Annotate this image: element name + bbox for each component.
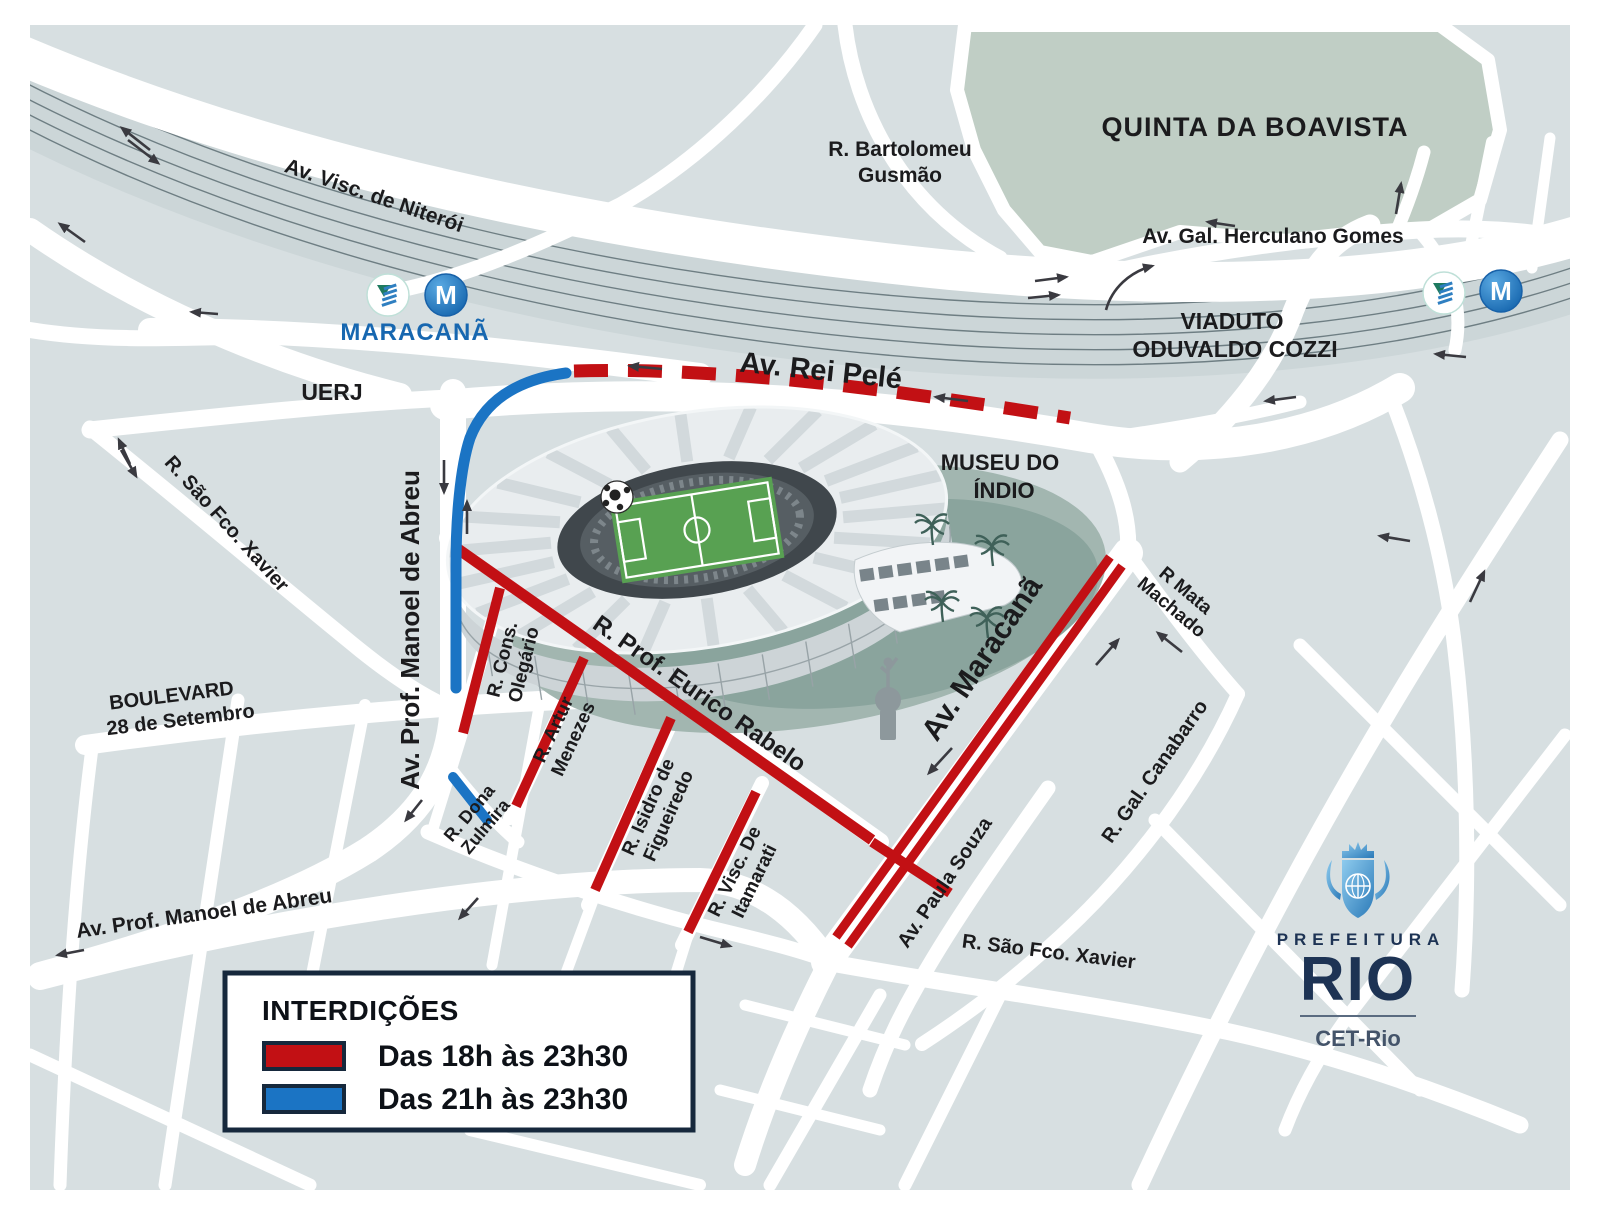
road-closure-map: M M Av. Visc. de Niterói R. Bartolomeu G… (0, 0, 1600, 1224)
metro-icon: M (425, 274, 467, 316)
area-label-park: QUINTA DA BOAVISTA (1102, 112, 1409, 142)
map-canvas: M M Av. Visc. de Niterói R. Bartolomeu G… (0, 0, 1600, 1224)
metro-letter: M (435, 280, 457, 310)
supervia-icon (367, 274, 409, 316)
logo-rio: RIO (1300, 945, 1416, 1014)
area-label-museum: MUSEU DO (941, 450, 1060, 475)
area-label-museum: ÍNDIO (973, 478, 1034, 503)
area-label-viaduct: ODUVALDO COZZI (1132, 336, 1337, 362)
legend-swatch-21h (264, 1086, 344, 1112)
legend-swatch-18h (264, 1043, 344, 1069)
area-label-viaduct: VIADUTO (1180, 308, 1283, 334)
legend-title: INTERDIÇÕES (262, 995, 459, 1026)
logo-cet-rio: CET-Rio (1315, 1026, 1401, 1051)
street-label: Gusmão (858, 164, 942, 187)
legend-label-18h: Das 18h às 23h30 (378, 1040, 628, 1073)
metro-icon: M (1480, 270, 1522, 312)
street-label: Av. Prof. Manoel de Abreu (395, 470, 425, 790)
street-label: Av. Gal. Herculano Gomes (1142, 225, 1403, 248)
soccer-ball (601, 481, 633, 513)
station-label: MARACANÃ (340, 318, 489, 346)
legend-label-21h: Das 21h às 23h30 (378, 1083, 628, 1116)
metro-letter: M (1490, 276, 1512, 306)
supervia-icon (1423, 272, 1465, 314)
area-label-uerj: UERJ (301, 379, 362, 405)
legend: INTERDIÇÕES Das 18h às 23h30 Das 21h às … (225, 973, 693, 1130)
street-label: R. Bartolomeu (828, 138, 972, 161)
